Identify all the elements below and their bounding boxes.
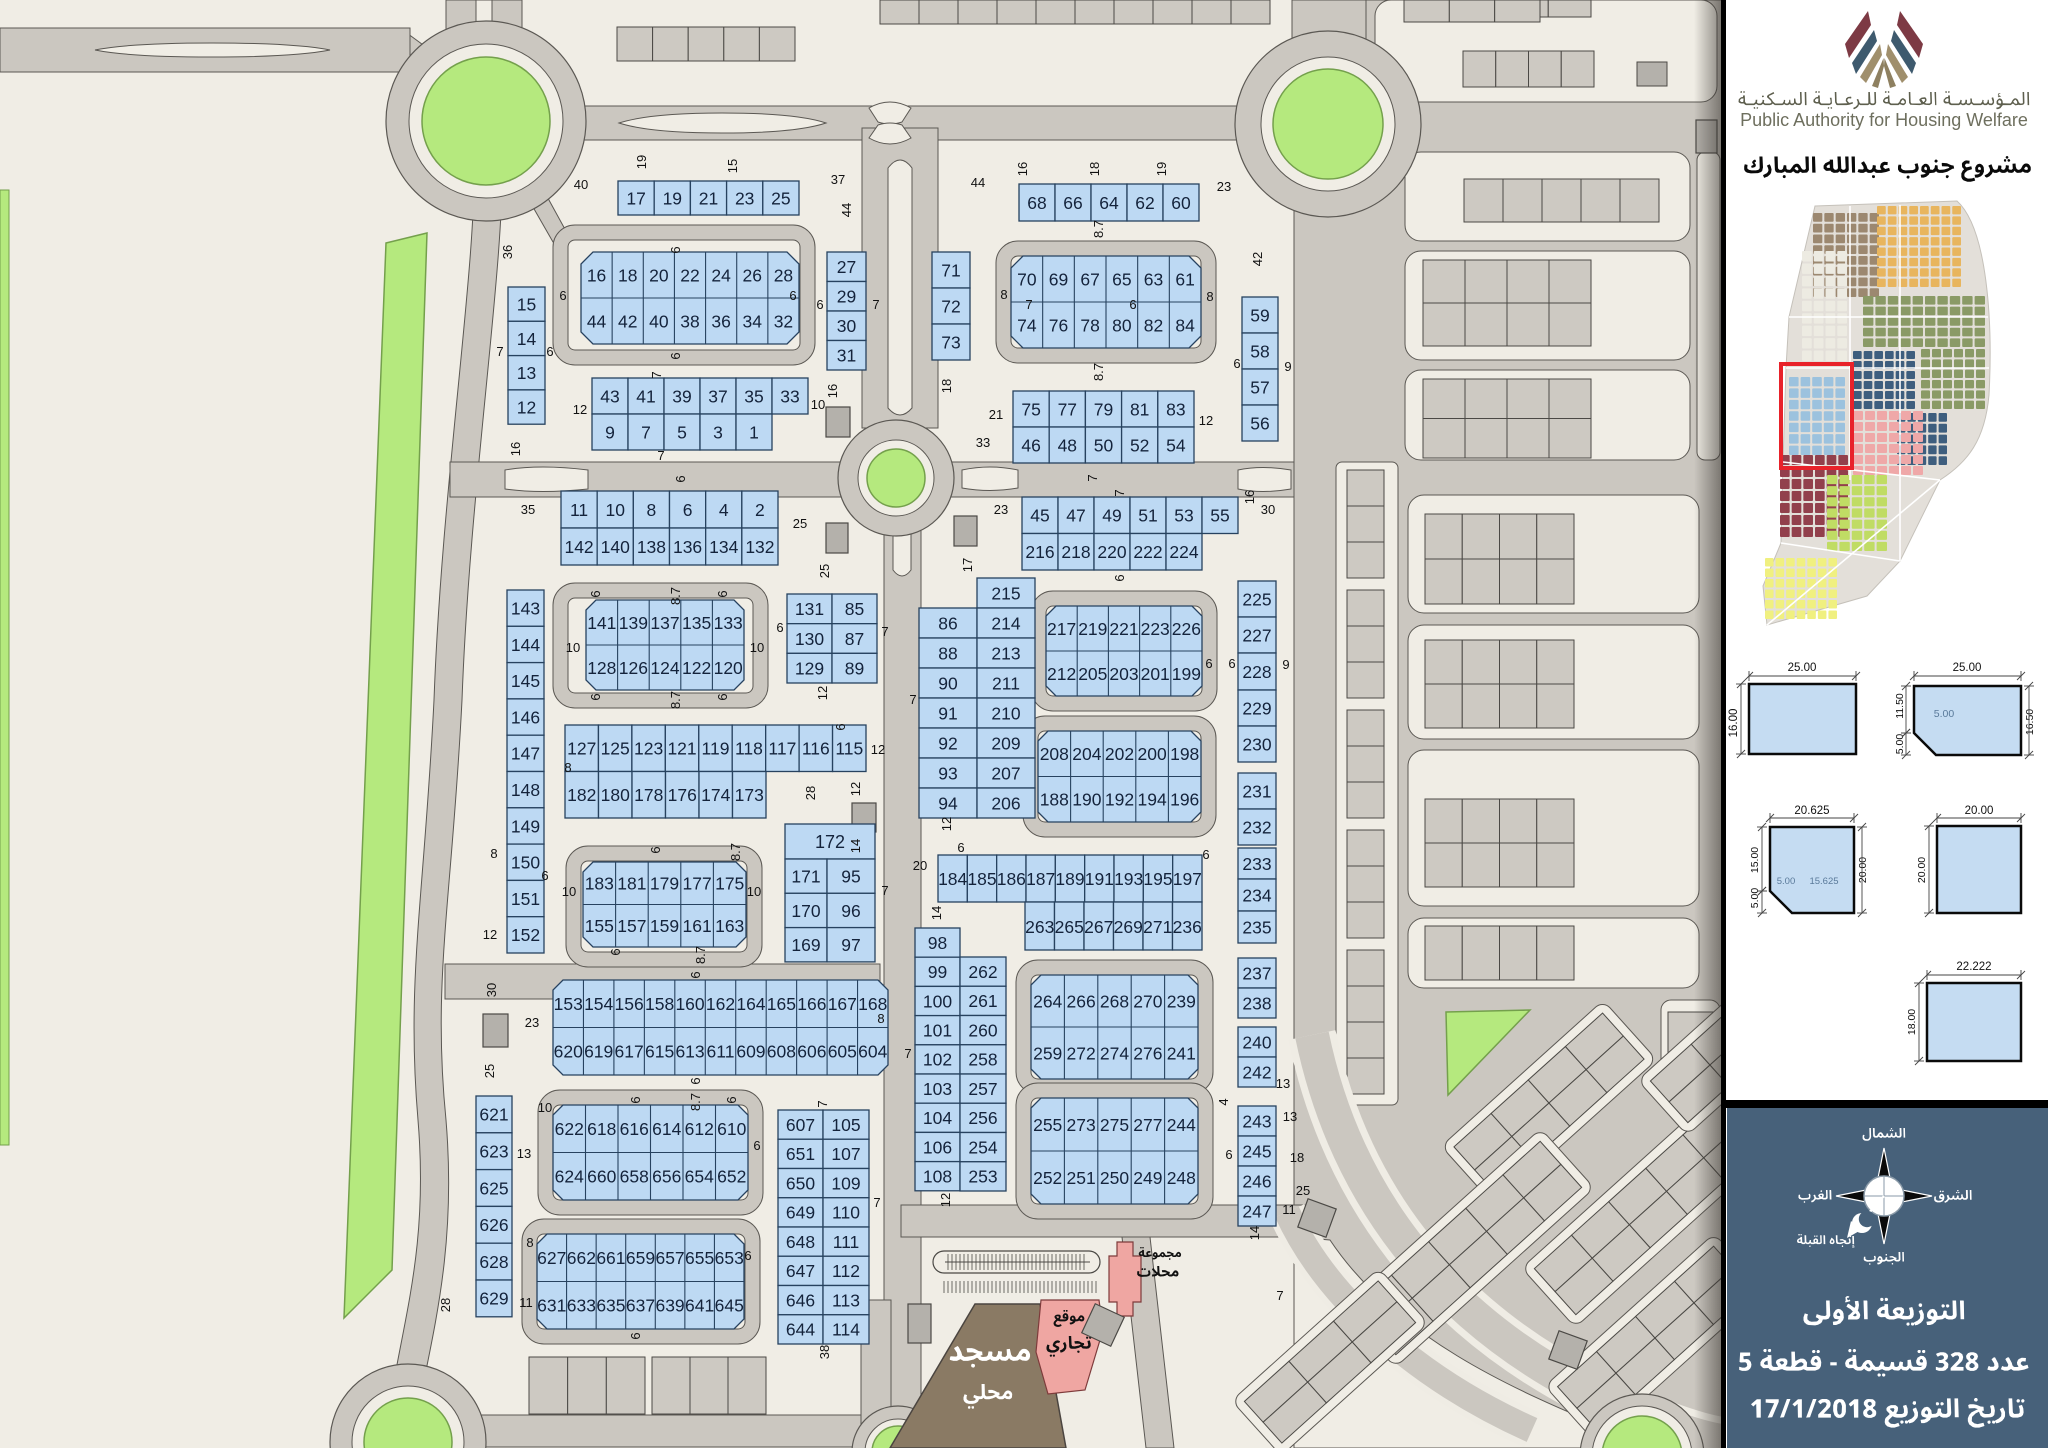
svg-text:607: 607 xyxy=(786,1115,815,1135)
svg-text:655: 655 xyxy=(685,1248,714,1268)
svg-text:181: 181 xyxy=(617,874,646,894)
svg-text:183: 183 xyxy=(585,874,614,894)
svg-text:213: 213 xyxy=(991,643,1020,663)
svg-text:8: 8 xyxy=(526,1235,533,1250)
svg-text:28: 28 xyxy=(774,265,793,285)
svg-text:93: 93 xyxy=(938,763,957,783)
svg-text:16: 16 xyxy=(587,265,606,285)
svg-text:53: 53 xyxy=(1174,506,1193,526)
svg-text:4: 4 xyxy=(1216,1098,1231,1105)
svg-text:103: 103 xyxy=(923,1079,952,1099)
svg-text:618: 618 xyxy=(587,1119,616,1139)
svg-text:74: 74 xyxy=(1017,315,1037,335)
svg-text:248: 248 xyxy=(1167,1168,1196,1188)
svg-text:106: 106 xyxy=(923,1137,952,1157)
svg-text:145: 145 xyxy=(511,671,540,691)
svg-text:82: 82 xyxy=(1144,315,1163,335)
svg-text:120: 120 xyxy=(714,658,743,678)
svg-text:62: 62 xyxy=(1135,193,1154,213)
svg-text:633: 633 xyxy=(567,1296,596,1316)
svg-text:216: 216 xyxy=(1025,542,1054,562)
svg-text:19: 19 xyxy=(634,155,649,169)
svg-text:49: 49 xyxy=(1102,506,1121,526)
svg-text:71: 71 xyxy=(941,260,960,280)
svg-text:39: 39 xyxy=(672,386,691,406)
svg-text:263: 263 xyxy=(1025,917,1054,937)
svg-text:260: 260 xyxy=(968,1020,997,1040)
svg-text:1: 1 xyxy=(749,422,759,442)
svg-text:23: 23 xyxy=(525,1015,539,1030)
svg-text:657: 657 xyxy=(655,1248,684,1268)
svg-text:160: 160 xyxy=(675,994,704,1014)
svg-text:197: 197 xyxy=(1173,869,1202,889)
svg-text:218: 218 xyxy=(1061,542,1090,562)
svg-text:7: 7 xyxy=(815,1100,830,1107)
svg-text:258: 258 xyxy=(968,1050,997,1070)
svg-text:179: 179 xyxy=(650,874,679,894)
svg-text:134: 134 xyxy=(709,537,738,557)
svg-text:8: 8 xyxy=(1000,287,1007,302)
svg-text:615: 615 xyxy=(645,1042,674,1062)
svg-text:606: 606 xyxy=(797,1042,826,1062)
svg-text:620: 620 xyxy=(554,1042,583,1062)
svg-text:22.222: 22.222 xyxy=(1956,961,1991,973)
svg-text:231: 231 xyxy=(1242,781,1271,801)
svg-text:14: 14 xyxy=(517,329,537,349)
svg-text:7: 7 xyxy=(881,624,888,639)
svg-text:96: 96 xyxy=(841,901,860,921)
svg-text:79: 79 xyxy=(1094,399,1113,419)
svg-text:12: 12 xyxy=(573,402,587,417)
svg-text:56: 56 xyxy=(1250,413,1269,433)
svg-text:210: 210 xyxy=(991,703,1020,723)
svg-text:50: 50 xyxy=(1094,435,1114,455)
svg-text:38: 38 xyxy=(817,1345,832,1359)
svg-text:7: 7 xyxy=(649,371,664,378)
svg-text:113: 113 xyxy=(832,1290,860,1310)
svg-text:646: 646 xyxy=(786,1290,815,1310)
svg-text:19: 19 xyxy=(1154,162,1169,176)
svg-text:261: 261 xyxy=(968,991,997,1011)
svg-text:119: 119 xyxy=(702,739,730,759)
svg-text:47: 47 xyxy=(1066,506,1085,526)
svg-text:7: 7 xyxy=(1276,1288,1283,1303)
svg-text:229: 229 xyxy=(1242,698,1271,718)
svg-text:627: 627 xyxy=(537,1248,566,1268)
svg-text:6: 6 xyxy=(744,1248,751,1263)
svg-text:139: 139 xyxy=(619,613,648,633)
svg-text:6: 6 xyxy=(588,590,603,597)
svg-text:55: 55 xyxy=(1210,506,1229,526)
svg-text:198: 198 xyxy=(1170,744,1199,764)
svg-text:86: 86 xyxy=(938,613,957,633)
svg-text:641: 641 xyxy=(685,1296,714,1316)
svg-text:102: 102 xyxy=(923,1050,952,1070)
svg-text:268: 268 xyxy=(1100,991,1129,1011)
svg-text:7: 7 xyxy=(1085,474,1100,481)
svg-text:21: 21 xyxy=(699,188,718,208)
svg-text:25: 25 xyxy=(793,516,807,531)
svg-text:20: 20 xyxy=(913,858,927,873)
svg-text:201: 201 xyxy=(1141,664,1170,684)
svg-text:254: 254 xyxy=(968,1137,997,1157)
svg-text:83: 83 xyxy=(1166,399,1185,419)
svg-text:157: 157 xyxy=(617,916,646,936)
svg-text:275: 275 xyxy=(1100,1115,1129,1135)
svg-text:6: 6 xyxy=(688,1077,703,1084)
svg-text:36: 36 xyxy=(711,311,730,331)
svg-text:226: 226 xyxy=(1172,619,1201,639)
svg-text:255: 255 xyxy=(1033,1115,1062,1135)
svg-text:57: 57 xyxy=(1250,377,1269,397)
svg-text:111: 111 xyxy=(833,1232,860,1252)
svg-text:8.7: 8.7 xyxy=(688,1093,703,1111)
svg-text:15: 15 xyxy=(725,159,740,173)
svg-text:6: 6 xyxy=(668,246,683,253)
svg-text:190: 190 xyxy=(1072,790,1101,810)
svg-text:8: 8 xyxy=(647,500,657,520)
svg-text:73: 73 xyxy=(941,332,960,352)
svg-text:253: 253 xyxy=(968,1167,997,1187)
svg-text:7: 7 xyxy=(873,1195,880,1210)
svg-text:613: 613 xyxy=(675,1042,704,1062)
svg-text:66: 66 xyxy=(1063,193,1082,213)
svg-text:125: 125 xyxy=(601,739,630,759)
svg-text:107: 107 xyxy=(831,1144,860,1164)
svg-text:152: 152 xyxy=(511,925,540,945)
svg-text:12: 12 xyxy=(848,782,863,796)
svg-text:112: 112 xyxy=(832,1261,860,1281)
svg-text:650: 650 xyxy=(786,1173,815,1193)
svg-text:85: 85 xyxy=(845,599,864,619)
svg-text:215: 215 xyxy=(991,583,1020,603)
svg-text:186: 186 xyxy=(997,869,1026,889)
svg-text:10: 10 xyxy=(606,500,626,520)
svg-text:173: 173 xyxy=(735,785,764,805)
svg-text:252: 252 xyxy=(1033,1168,1062,1188)
svg-text:193: 193 xyxy=(1114,869,1143,889)
svg-text:156: 156 xyxy=(615,994,644,1014)
svg-text:3: 3 xyxy=(713,422,723,442)
svg-text:14: 14 xyxy=(1247,1226,1262,1240)
svg-text:6: 6 xyxy=(673,475,688,482)
svg-text:18: 18 xyxy=(618,265,637,285)
svg-text:80: 80 xyxy=(1112,315,1132,335)
svg-text:203: 203 xyxy=(1109,664,1138,684)
svg-text:94: 94 xyxy=(938,793,958,813)
svg-text:90: 90 xyxy=(938,673,958,693)
svg-text:Public Authority for Housing W: Public Authority for Housing Welfare xyxy=(1740,110,2028,130)
svg-text:44: 44 xyxy=(971,175,985,190)
svg-text:6: 6 xyxy=(628,1096,643,1103)
svg-text:76: 76 xyxy=(1049,315,1068,335)
svg-text:117: 117 xyxy=(768,739,796,759)
svg-text:7: 7 xyxy=(909,692,916,707)
svg-text:656: 656 xyxy=(652,1167,681,1187)
svg-text:24: 24 xyxy=(711,265,731,285)
svg-text:146: 146 xyxy=(511,707,540,727)
svg-text:44: 44 xyxy=(839,203,854,217)
svg-text:8.7: 8.7 xyxy=(728,843,743,861)
svg-text:10: 10 xyxy=(811,397,825,412)
svg-text:9: 9 xyxy=(605,422,615,442)
svg-text:25: 25 xyxy=(1296,1183,1310,1198)
svg-text:6: 6 xyxy=(559,288,566,303)
svg-text:277: 277 xyxy=(1133,1115,1162,1135)
svg-text:621: 621 xyxy=(479,1105,508,1125)
svg-text:165: 165 xyxy=(767,994,796,1014)
svg-text:182: 182 xyxy=(567,785,596,805)
svg-text:6: 6 xyxy=(1205,656,1212,671)
svg-text:247: 247 xyxy=(1242,1201,1271,1221)
svg-text:232: 232 xyxy=(1242,817,1271,837)
svg-text:151: 151 xyxy=(511,889,540,909)
svg-text:250: 250 xyxy=(1100,1168,1129,1188)
svg-text:167: 167 xyxy=(828,994,857,1014)
svg-text:7: 7 xyxy=(881,883,888,898)
svg-text:12: 12 xyxy=(871,742,885,757)
svg-text:10: 10 xyxy=(747,884,761,899)
svg-text:6: 6 xyxy=(816,297,823,312)
svg-text:20.00: 20.00 xyxy=(1916,857,1928,883)
svg-text:104: 104 xyxy=(923,1108,952,1128)
svg-text:262: 262 xyxy=(968,962,997,982)
svg-text:166: 166 xyxy=(797,994,826,1014)
svg-text:33: 33 xyxy=(976,435,990,450)
svg-text:20.00: 20.00 xyxy=(1965,805,1994,817)
svg-text:126: 126 xyxy=(619,658,648,678)
svg-text:6: 6 xyxy=(1202,847,1209,862)
svg-text:8.7: 8.7 xyxy=(1091,220,1106,238)
svg-text:242: 242 xyxy=(1242,1062,1271,1082)
svg-text:219: 219 xyxy=(1078,619,1107,639)
svg-text:141: 141 xyxy=(587,613,616,633)
svg-text:626: 626 xyxy=(479,1215,508,1235)
svg-text:16: 16 xyxy=(508,442,523,456)
svg-text:635: 635 xyxy=(596,1296,625,1316)
svg-text:43: 43 xyxy=(600,386,619,406)
svg-text:230: 230 xyxy=(1242,734,1271,754)
svg-text:611: 611 xyxy=(707,1042,735,1062)
svg-text:98: 98 xyxy=(928,933,947,953)
svg-text:89: 89 xyxy=(845,658,864,678)
svg-text:243: 243 xyxy=(1242,1111,1271,1131)
svg-text:29: 29 xyxy=(837,287,856,307)
svg-text:238: 238 xyxy=(1242,993,1271,1013)
svg-text:6: 6 xyxy=(833,723,848,730)
svg-text:195: 195 xyxy=(1143,869,1172,889)
svg-text:20.00: 20.00 xyxy=(1857,857,1869,883)
svg-text:204: 204 xyxy=(1072,744,1101,764)
svg-text:175: 175 xyxy=(715,874,744,894)
svg-text:10: 10 xyxy=(566,640,580,655)
svg-text:249: 249 xyxy=(1133,1168,1162,1188)
svg-text:131: 131 xyxy=(795,599,824,619)
svg-text:21: 21 xyxy=(989,407,1003,422)
svg-text:13: 13 xyxy=(517,363,536,383)
svg-text:60: 60 xyxy=(1171,193,1191,213)
svg-text:207: 207 xyxy=(991,763,1020,783)
svg-text:661: 661 xyxy=(596,1248,625,1268)
svg-text:30: 30 xyxy=(837,316,857,336)
svg-text:158: 158 xyxy=(645,994,674,1014)
svg-text:14: 14 xyxy=(929,906,944,920)
svg-text:99: 99 xyxy=(928,962,947,982)
svg-text:659: 659 xyxy=(626,1248,655,1268)
svg-text:264: 264 xyxy=(1033,991,1062,1011)
svg-text:7: 7 xyxy=(1025,297,1032,312)
svg-text:176: 176 xyxy=(668,785,697,805)
svg-text:81: 81 xyxy=(1130,399,1149,419)
svg-text:13: 13 xyxy=(1276,1076,1290,1091)
svg-text:217: 217 xyxy=(1047,619,1076,639)
svg-text:20: 20 xyxy=(649,265,669,285)
svg-text:658: 658 xyxy=(620,1167,649,1187)
svg-text:228: 228 xyxy=(1242,662,1271,682)
svg-text:233: 233 xyxy=(1242,854,1271,874)
svg-text:6: 6 xyxy=(608,948,623,955)
svg-text:269: 269 xyxy=(1114,917,1143,937)
svg-text:154: 154 xyxy=(584,994,613,1014)
svg-text:128: 128 xyxy=(587,658,616,678)
svg-text:16.50: 16.50 xyxy=(2024,709,2036,735)
svg-text:188: 188 xyxy=(1040,790,1069,810)
svg-text:16.00: 16.00 xyxy=(1728,709,1740,738)
svg-text:6: 6 xyxy=(588,693,603,700)
svg-text:653: 653 xyxy=(715,1248,744,1268)
svg-text:147: 147 xyxy=(511,744,540,764)
svg-text:15.00: 15.00 xyxy=(1749,847,1761,873)
svg-text:25.00: 25.00 xyxy=(1953,662,1982,674)
svg-text:7: 7 xyxy=(872,297,879,312)
svg-text:45: 45 xyxy=(1030,506,1049,526)
svg-text:214: 214 xyxy=(991,613,1020,633)
svg-text:25.00: 25.00 xyxy=(1788,662,1817,674)
svg-text:172: 172 xyxy=(815,832,845,852)
svg-text:17: 17 xyxy=(960,558,975,572)
svg-text:196: 196 xyxy=(1170,790,1199,810)
svg-text:42: 42 xyxy=(618,311,637,331)
svg-text:169: 169 xyxy=(791,935,820,955)
svg-text:223: 223 xyxy=(1141,619,1170,639)
svg-text:116: 116 xyxy=(802,739,830,759)
svg-text:63: 63 xyxy=(1144,269,1163,289)
svg-text:31: 31 xyxy=(837,346,856,366)
svg-text:77: 77 xyxy=(1058,399,1077,419)
svg-text:35: 35 xyxy=(521,502,535,517)
svg-text:225: 225 xyxy=(1242,589,1271,609)
svg-text:75: 75 xyxy=(1021,399,1040,419)
svg-text:150: 150 xyxy=(511,853,540,873)
svg-text:652: 652 xyxy=(717,1167,746,1187)
svg-text:8.7: 8.7 xyxy=(1091,363,1106,381)
svg-text:6: 6 xyxy=(724,1096,739,1103)
svg-text:12: 12 xyxy=(815,686,830,700)
svg-text:11.50: 11.50 xyxy=(1894,693,1906,719)
svg-text:18.00: 18.00 xyxy=(1906,1009,1918,1035)
svg-text:178: 178 xyxy=(634,785,663,805)
svg-text:110: 110 xyxy=(832,1203,860,1223)
svg-text:124: 124 xyxy=(650,658,679,678)
svg-text:7: 7 xyxy=(904,1046,911,1061)
svg-text:9: 9 xyxy=(1284,359,1291,374)
svg-text:30: 30 xyxy=(484,983,499,997)
svg-text:6: 6 xyxy=(628,1332,643,1339)
svg-text:6: 6 xyxy=(789,288,796,303)
svg-text:138: 138 xyxy=(637,537,666,557)
svg-text:208: 208 xyxy=(1040,744,1069,764)
svg-text:121: 121 xyxy=(667,739,696,759)
svg-text:52: 52 xyxy=(1130,435,1149,455)
svg-text:221: 221 xyxy=(1109,619,1138,639)
svg-text:191: 191 xyxy=(1085,869,1114,889)
svg-text:13: 13 xyxy=(517,1146,531,1161)
svg-text:237: 237 xyxy=(1242,963,1271,983)
svg-text:616: 616 xyxy=(620,1119,649,1139)
svg-text:28: 28 xyxy=(803,786,818,800)
svg-text:133: 133 xyxy=(714,613,743,633)
svg-text:276: 276 xyxy=(1133,1043,1162,1063)
svg-text:4: 4 xyxy=(719,500,729,520)
svg-text:18: 18 xyxy=(1290,1150,1304,1165)
svg-text:637: 637 xyxy=(626,1296,655,1316)
svg-text:220: 220 xyxy=(1097,542,1126,562)
svg-text:44: 44 xyxy=(587,311,607,331)
svg-text:6: 6 xyxy=(753,1138,760,1153)
svg-text:609: 609 xyxy=(736,1042,765,1062)
svg-text:12: 12 xyxy=(938,1193,953,1207)
svg-text:171: 171 xyxy=(791,866,820,886)
svg-text:36: 36 xyxy=(500,245,515,259)
svg-text:6: 6 xyxy=(957,840,964,855)
svg-text:140: 140 xyxy=(601,537,630,557)
svg-text:251: 251 xyxy=(1066,1168,1095,1188)
svg-text:7: 7 xyxy=(496,344,503,359)
svg-text:185: 185 xyxy=(967,869,996,889)
svg-text:647: 647 xyxy=(786,1261,815,1281)
svg-text:270: 270 xyxy=(1133,991,1162,1011)
svg-text:15.625: 15.625 xyxy=(1809,876,1838,887)
svg-text:11: 11 xyxy=(519,1295,533,1310)
svg-text:41: 41 xyxy=(636,386,655,406)
svg-text:61: 61 xyxy=(1175,269,1194,289)
svg-text:127: 127 xyxy=(567,739,596,759)
svg-text:46: 46 xyxy=(1021,435,1040,455)
svg-text:9: 9 xyxy=(1282,657,1289,672)
svg-text:19: 19 xyxy=(663,188,682,208)
svg-text:205: 205 xyxy=(1078,664,1107,684)
svg-text:240: 240 xyxy=(1242,1032,1271,1052)
svg-text:624: 624 xyxy=(555,1167,584,1187)
svg-text:274: 274 xyxy=(1100,1043,1129,1063)
svg-text:235: 235 xyxy=(1242,917,1271,937)
svg-text:123: 123 xyxy=(634,739,663,759)
svg-text:265: 265 xyxy=(1055,917,1084,937)
svg-text:612: 612 xyxy=(685,1119,714,1139)
svg-text:91: 91 xyxy=(938,703,957,723)
svg-text:622: 622 xyxy=(555,1119,584,1139)
svg-text:59: 59 xyxy=(1250,305,1269,325)
svg-text:12: 12 xyxy=(483,927,497,942)
svg-text:6: 6 xyxy=(715,693,730,700)
svg-text:660: 660 xyxy=(587,1167,616,1187)
svg-text:13: 13 xyxy=(1283,1109,1297,1124)
svg-text:16: 16 xyxy=(1242,490,1257,504)
svg-text:6: 6 xyxy=(688,971,703,978)
svg-text:159: 159 xyxy=(650,916,679,936)
svg-text:155: 155 xyxy=(585,916,614,936)
svg-text:605: 605 xyxy=(828,1042,857,1062)
